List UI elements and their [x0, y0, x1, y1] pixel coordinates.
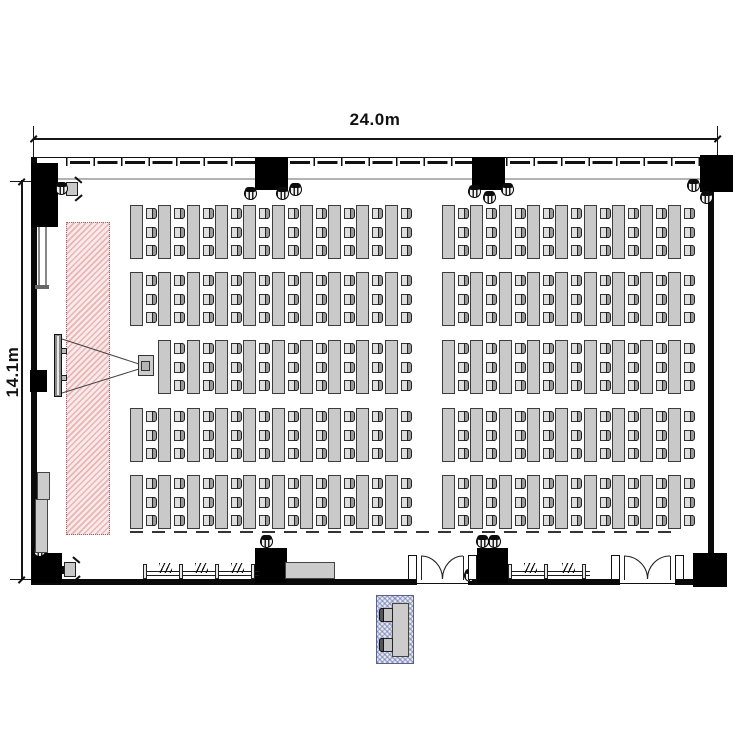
table-cluster: [499, 272, 524, 326]
table-cluster: [187, 205, 212, 259]
table-cluster: [158, 475, 183, 529]
chair: [401, 208, 410, 219]
chair: [344, 515, 353, 526]
chair: [684, 448, 693, 459]
table: [612, 205, 625, 259]
chair: [628, 362, 637, 373]
table: [527, 205, 540, 259]
chair: [571, 380, 580, 391]
wall-rail-cap: [35, 285, 49, 289]
table-cluster: [328, 408, 353, 462]
chair: [174, 312, 183, 323]
table: [668, 272, 681, 326]
table-cluster: [158, 205, 183, 259]
chair: [288, 227, 297, 238]
screen-bracket: [61, 375, 67, 381]
chair: [231, 227, 240, 238]
table: [272, 272, 285, 326]
table: [328, 272, 341, 326]
chair: [288, 448, 297, 459]
chair: [656, 515, 665, 526]
chair: [372, 515, 381, 526]
chair: [600, 411, 609, 422]
table-cluster: [668, 475, 693, 529]
stack-hatch-icon: [231, 563, 244, 573]
chair: [231, 245, 240, 256]
chair: [203, 343, 212, 354]
table-cluster: [385, 340, 410, 394]
table: [668, 408, 681, 462]
chair: [486, 380, 495, 391]
chair: [628, 497, 637, 508]
table-cluster: [356, 475, 381, 529]
chair: [372, 227, 381, 238]
chair: [628, 380, 637, 391]
chair: [259, 312, 268, 323]
chair: [401, 411, 410, 422]
chair: [174, 294, 183, 305]
table: [385, 475, 398, 529]
ceiling-speaker-icon: [289, 183, 302, 196]
table: [300, 272, 313, 326]
projection-cone: [62, 369, 139, 393]
chair: [458, 245, 467, 256]
table: [668, 205, 681, 259]
table: [243, 340, 256, 394]
chair: [203, 208, 212, 219]
table: [356, 272, 369, 326]
table: [640, 205, 653, 259]
chair: [628, 430, 637, 441]
chair: [146, 227, 155, 238]
table: [527, 475, 540, 529]
chair: [486, 448, 495, 459]
chair: [174, 227, 183, 238]
table: [272, 205, 285, 259]
table: [300, 475, 313, 529]
chair: [543, 275, 552, 286]
table-cluster: [328, 272, 353, 326]
door-jamb: [611, 555, 620, 580]
chair: [543, 245, 552, 256]
table: [385, 340, 398, 394]
chair: [146, 411, 155, 422]
table: [584, 205, 597, 259]
table-cluster: [442, 205, 467, 259]
chair: [344, 227, 353, 238]
chair: [458, 411, 467, 422]
chair: [515, 245, 524, 256]
booth-chair: [381, 638, 393, 652]
chair: [259, 380, 268, 391]
chair: [656, 497, 665, 508]
chair: [543, 362, 552, 373]
table-cluster: [499, 475, 524, 529]
chair: [146, 478, 155, 489]
structural-column: [30, 370, 47, 392]
table: [640, 272, 653, 326]
chair: [316, 227, 325, 238]
chair: [231, 448, 240, 459]
table-cluster: [187, 340, 212, 394]
chair: [656, 275, 665, 286]
chair: [571, 294, 580, 305]
table: [668, 340, 681, 394]
table-cluster: [215, 475, 240, 529]
chair: [146, 515, 155, 526]
table: [640, 475, 653, 529]
chair: [231, 343, 240, 354]
chair: [344, 497, 353, 508]
chair: [174, 430, 183, 441]
chair: [288, 312, 297, 323]
railing-post: [508, 564, 512, 579]
chair: [600, 478, 609, 489]
door-jamb: [468, 555, 477, 580]
stack-hatch-icon: [159, 563, 172, 573]
table-cluster: [612, 408, 637, 462]
chair: [259, 227, 268, 238]
cabinet: [37, 472, 50, 500]
operator-booth: [376, 595, 414, 664]
chair: [174, 411, 183, 422]
ceiling-speaker-icon: [244, 187, 257, 200]
chair: [543, 294, 552, 305]
table: [584, 475, 597, 529]
chair: [146, 294, 155, 305]
table: [272, 475, 285, 529]
table-cluster: [243, 205, 268, 259]
table: [555, 340, 568, 394]
chair: [372, 430, 381, 441]
chair: [571, 448, 580, 459]
table-cluster: [668, 272, 693, 326]
chair: [316, 343, 325, 354]
table: [328, 205, 341, 259]
table: [356, 408, 369, 462]
table: [272, 340, 285, 394]
table-cluster: [668, 340, 693, 394]
table-cluster: [612, 475, 637, 529]
chair: [543, 478, 552, 489]
table: [215, 340, 228, 394]
table-cluster: [640, 408, 665, 462]
table-cluster: [272, 408, 297, 462]
chair: [543, 227, 552, 238]
chair: [344, 208, 353, 219]
table: [328, 408, 341, 462]
chair: [203, 227, 212, 238]
table-cluster: [215, 340, 240, 394]
table: [555, 408, 568, 462]
table: [668, 475, 681, 529]
chair: [372, 448, 381, 459]
chair: [316, 430, 325, 441]
chair: [628, 411, 637, 422]
table-cluster: [187, 272, 212, 326]
chair: [543, 380, 552, 391]
table-cluster: [499, 408, 524, 462]
chair: [316, 294, 325, 305]
table: [640, 408, 653, 462]
chair: [174, 497, 183, 508]
chair: [401, 362, 410, 373]
door-jamb: [408, 555, 417, 580]
chair: [174, 380, 183, 391]
table: [243, 475, 256, 529]
chair: [571, 275, 580, 286]
chair: [316, 208, 325, 219]
chair: [259, 448, 268, 459]
chair: [600, 430, 609, 441]
chair: [288, 208, 297, 219]
chair: [628, 312, 637, 323]
table-cluster: [243, 272, 268, 326]
chair: [486, 362, 495, 373]
chair: [684, 497, 693, 508]
table-cluster: [640, 475, 665, 529]
ceiling-speaker-icon: [501, 183, 514, 196]
booth-table: [392, 603, 409, 657]
chair: [515, 275, 524, 286]
chair: [174, 362, 183, 373]
chair: [316, 411, 325, 422]
table-cluster: [243, 340, 268, 394]
chair: [372, 478, 381, 489]
table-cluster: [640, 272, 665, 326]
chair: [600, 294, 609, 305]
chair: [203, 430, 212, 441]
chair: [571, 343, 580, 354]
chair: [486, 208, 495, 219]
chair: [684, 275, 693, 286]
chair: [600, 312, 609, 323]
chair: [628, 208, 637, 219]
chair: [684, 227, 693, 238]
chair: [174, 448, 183, 459]
chair: [486, 275, 495, 286]
projector-lens: [141, 361, 150, 371]
chair: [231, 430, 240, 441]
chair: [515, 227, 524, 238]
chair: [458, 275, 467, 286]
table-cluster: [584, 205, 609, 259]
chair: [401, 430, 410, 441]
table: [584, 408, 597, 462]
table-cluster: [612, 340, 637, 394]
chair: [316, 497, 325, 508]
chair: [656, 208, 665, 219]
chair: [146, 208, 155, 219]
table: [356, 205, 369, 259]
chair: [684, 343, 693, 354]
chair: [486, 343, 495, 354]
chair: [401, 227, 410, 238]
chair: [288, 275, 297, 286]
table: [300, 205, 313, 259]
chair: [231, 275, 240, 286]
chair: [600, 343, 609, 354]
table-cluster: [442, 408, 467, 462]
chair: [684, 208, 693, 219]
screen-bracket: [61, 348, 67, 354]
table: [584, 272, 597, 326]
chair: [372, 208, 381, 219]
chair: [231, 411, 240, 422]
structural-column: [255, 157, 288, 190]
railing-post: [143, 564, 147, 579]
chair: [571, 362, 580, 373]
chair: [628, 275, 637, 286]
table-cluster: [527, 408, 552, 462]
chair: [571, 478, 580, 489]
chair: [684, 294, 693, 305]
ceiling-speaker-icon: [483, 191, 496, 204]
table-cluster: [130, 272, 155, 326]
chair: [401, 380, 410, 391]
chair: [231, 208, 240, 219]
chair: [628, 448, 637, 459]
table: [272, 408, 285, 462]
chair: [600, 448, 609, 459]
projector-icon: [138, 355, 154, 376]
chair: [543, 312, 552, 323]
chair: [515, 411, 524, 422]
chair: [486, 478, 495, 489]
chair: [656, 430, 665, 441]
table-cluster: [470, 340, 495, 394]
chair: [515, 362, 524, 373]
table: [470, 408, 483, 462]
chair: [571, 411, 580, 422]
table-cluster: [584, 475, 609, 529]
table-cluster: [640, 340, 665, 394]
table-cluster: [243, 475, 268, 529]
table-cluster: [527, 475, 552, 529]
door-swing-arc: [421, 556, 443, 579]
stack-hatch-icon: [524, 563, 537, 573]
table: [442, 475, 455, 529]
table: [130, 272, 143, 326]
chair: [515, 515, 524, 526]
ceiling-speaker-icon: [276, 187, 289, 200]
chair: [600, 497, 609, 508]
table-cluster: [356, 272, 381, 326]
chair: [372, 362, 381, 373]
chair: [458, 430, 467, 441]
chair: [600, 515, 609, 526]
table: [555, 272, 568, 326]
chair: [656, 362, 665, 373]
table: [187, 205, 200, 259]
chair: [372, 294, 381, 305]
chair: [684, 430, 693, 441]
table-cluster: [272, 475, 297, 529]
stack-hatch-icon: [195, 563, 208, 573]
door-leaf: [670, 556, 671, 580]
table-cluster: [555, 475, 580, 529]
door-leaf: [624, 556, 625, 580]
chair: [344, 362, 353, 373]
chair: [458, 362, 467, 373]
chair: [684, 411, 693, 422]
table-cluster: [584, 408, 609, 462]
door-jamb: [675, 555, 684, 580]
chair: [259, 430, 268, 441]
table-cluster: [272, 340, 297, 394]
chair: [515, 294, 524, 305]
ceiling-speaker-icon: [468, 185, 481, 198]
table-cluster: [356, 408, 381, 462]
table: [499, 272, 512, 326]
chair: [146, 497, 155, 508]
chair: [203, 275, 212, 286]
chair: [571, 208, 580, 219]
chair: [259, 245, 268, 256]
chair: [146, 430, 155, 441]
table-cluster: [215, 408, 240, 462]
chair: [372, 275, 381, 286]
ceiling-speaker-icon: [260, 535, 273, 548]
chair: [684, 245, 693, 256]
structural-column: [477, 548, 508, 583]
table-cluster: [584, 340, 609, 394]
railing-post: [582, 564, 586, 579]
table-cluster: [215, 272, 240, 326]
chair: [543, 411, 552, 422]
chair: [543, 430, 552, 441]
table: [158, 205, 171, 259]
table: [555, 475, 568, 529]
chair: [146, 448, 155, 459]
chair: [174, 515, 183, 526]
chair: [316, 245, 325, 256]
chair: [628, 478, 637, 489]
cabinet: [285, 562, 335, 579]
chair: [401, 343, 410, 354]
chair: [656, 380, 665, 391]
chair: [628, 343, 637, 354]
chair: [486, 227, 495, 238]
chair: [231, 497, 240, 508]
table: [612, 475, 625, 529]
table-cluster: [158, 408, 183, 462]
chair: [203, 312, 212, 323]
chair: [259, 275, 268, 286]
chair: [146, 275, 155, 286]
table-cluster: [328, 475, 353, 529]
chair: [203, 380, 212, 391]
table: [187, 408, 200, 462]
table: [243, 205, 256, 259]
table-cluster: [300, 340, 325, 394]
chair: [259, 343, 268, 354]
table-cluster: [300, 272, 325, 326]
table-cluster: [187, 408, 212, 462]
table: [328, 475, 341, 529]
railing-post: [179, 564, 183, 579]
floor-plan: 24.0m 14.1m: [0, 0, 750, 750]
structural-column: [31, 163, 58, 227]
chair: [684, 478, 693, 489]
chair: [344, 312, 353, 323]
chair: [344, 275, 353, 286]
table-cluster: [300, 408, 325, 462]
structural-column: [255, 548, 287, 583]
table-cluster: [612, 272, 637, 326]
chair: [628, 515, 637, 526]
table: [187, 272, 200, 326]
